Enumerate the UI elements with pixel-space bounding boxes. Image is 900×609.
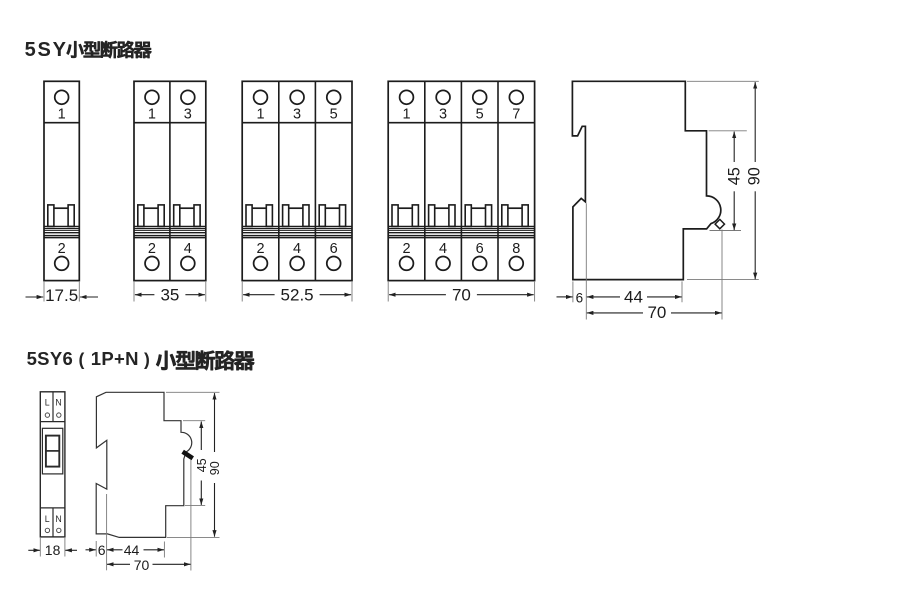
svg-text:L: L (45, 514, 50, 524)
svg-text:6: 6 (330, 241, 338, 257)
svg-text:1: 1 (148, 107, 156, 123)
svg-text:L: L (45, 398, 50, 408)
svg-text:90: 90 (746, 167, 764, 185)
svg-text:52.5: 52.5 (281, 286, 314, 305)
svg-text:1: 1 (58, 107, 66, 123)
svg-text:44: 44 (124, 542, 140, 558)
svg-text:(: ( (78, 350, 84, 370)
svg-text:70: 70 (134, 557, 150, 573)
svg-text:3: 3 (439, 107, 447, 123)
svg-text:18: 18 (45, 542, 61, 558)
svg-text:6: 6 (98, 542, 106, 558)
svg-text:2: 2 (148, 241, 156, 257)
svg-text:70: 70 (452, 286, 471, 305)
svg-text:5: 5 (476, 107, 484, 123)
svg-text:2: 2 (58, 241, 66, 257)
svg-text:70: 70 (647, 303, 666, 322)
svg-text:5: 5 (330, 107, 338, 123)
svg-text:4: 4 (293, 241, 301, 257)
svg-text:3: 3 (293, 107, 301, 123)
svg-text:8: 8 (512, 241, 520, 257)
svg-text:): ) (144, 350, 150, 370)
svg-text:6: 6 (576, 290, 584, 305)
svg-text:2: 2 (256, 241, 264, 257)
svg-text:2: 2 (402, 241, 410, 257)
svg-text:44: 44 (624, 287, 643, 306)
svg-text:5SY: 5SY (25, 39, 68, 61)
svg-text:17.5: 17.5 (45, 286, 78, 305)
svg-text:90: 90 (208, 461, 222, 475)
svg-text:5SY6: 5SY6 (27, 348, 73, 369)
svg-text:1: 1 (256, 107, 264, 123)
svg-text:N: N (55, 398, 61, 408)
svg-text:45: 45 (725, 167, 743, 185)
svg-text:1P+N: 1P+N (91, 348, 139, 369)
svg-text:4: 4 (184, 241, 192, 257)
svg-text:N: N (55, 514, 61, 524)
svg-text:7: 7 (512, 107, 520, 123)
svg-text:4: 4 (439, 241, 447, 257)
svg-text:1: 1 (402, 107, 410, 123)
svg-text:35: 35 (160, 286, 179, 305)
svg-text:3: 3 (184, 107, 192, 123)
svg-text:6: 6 (476, 241, 484, 257)
svg-text:45: 45 (195, 458, 209, 472)
